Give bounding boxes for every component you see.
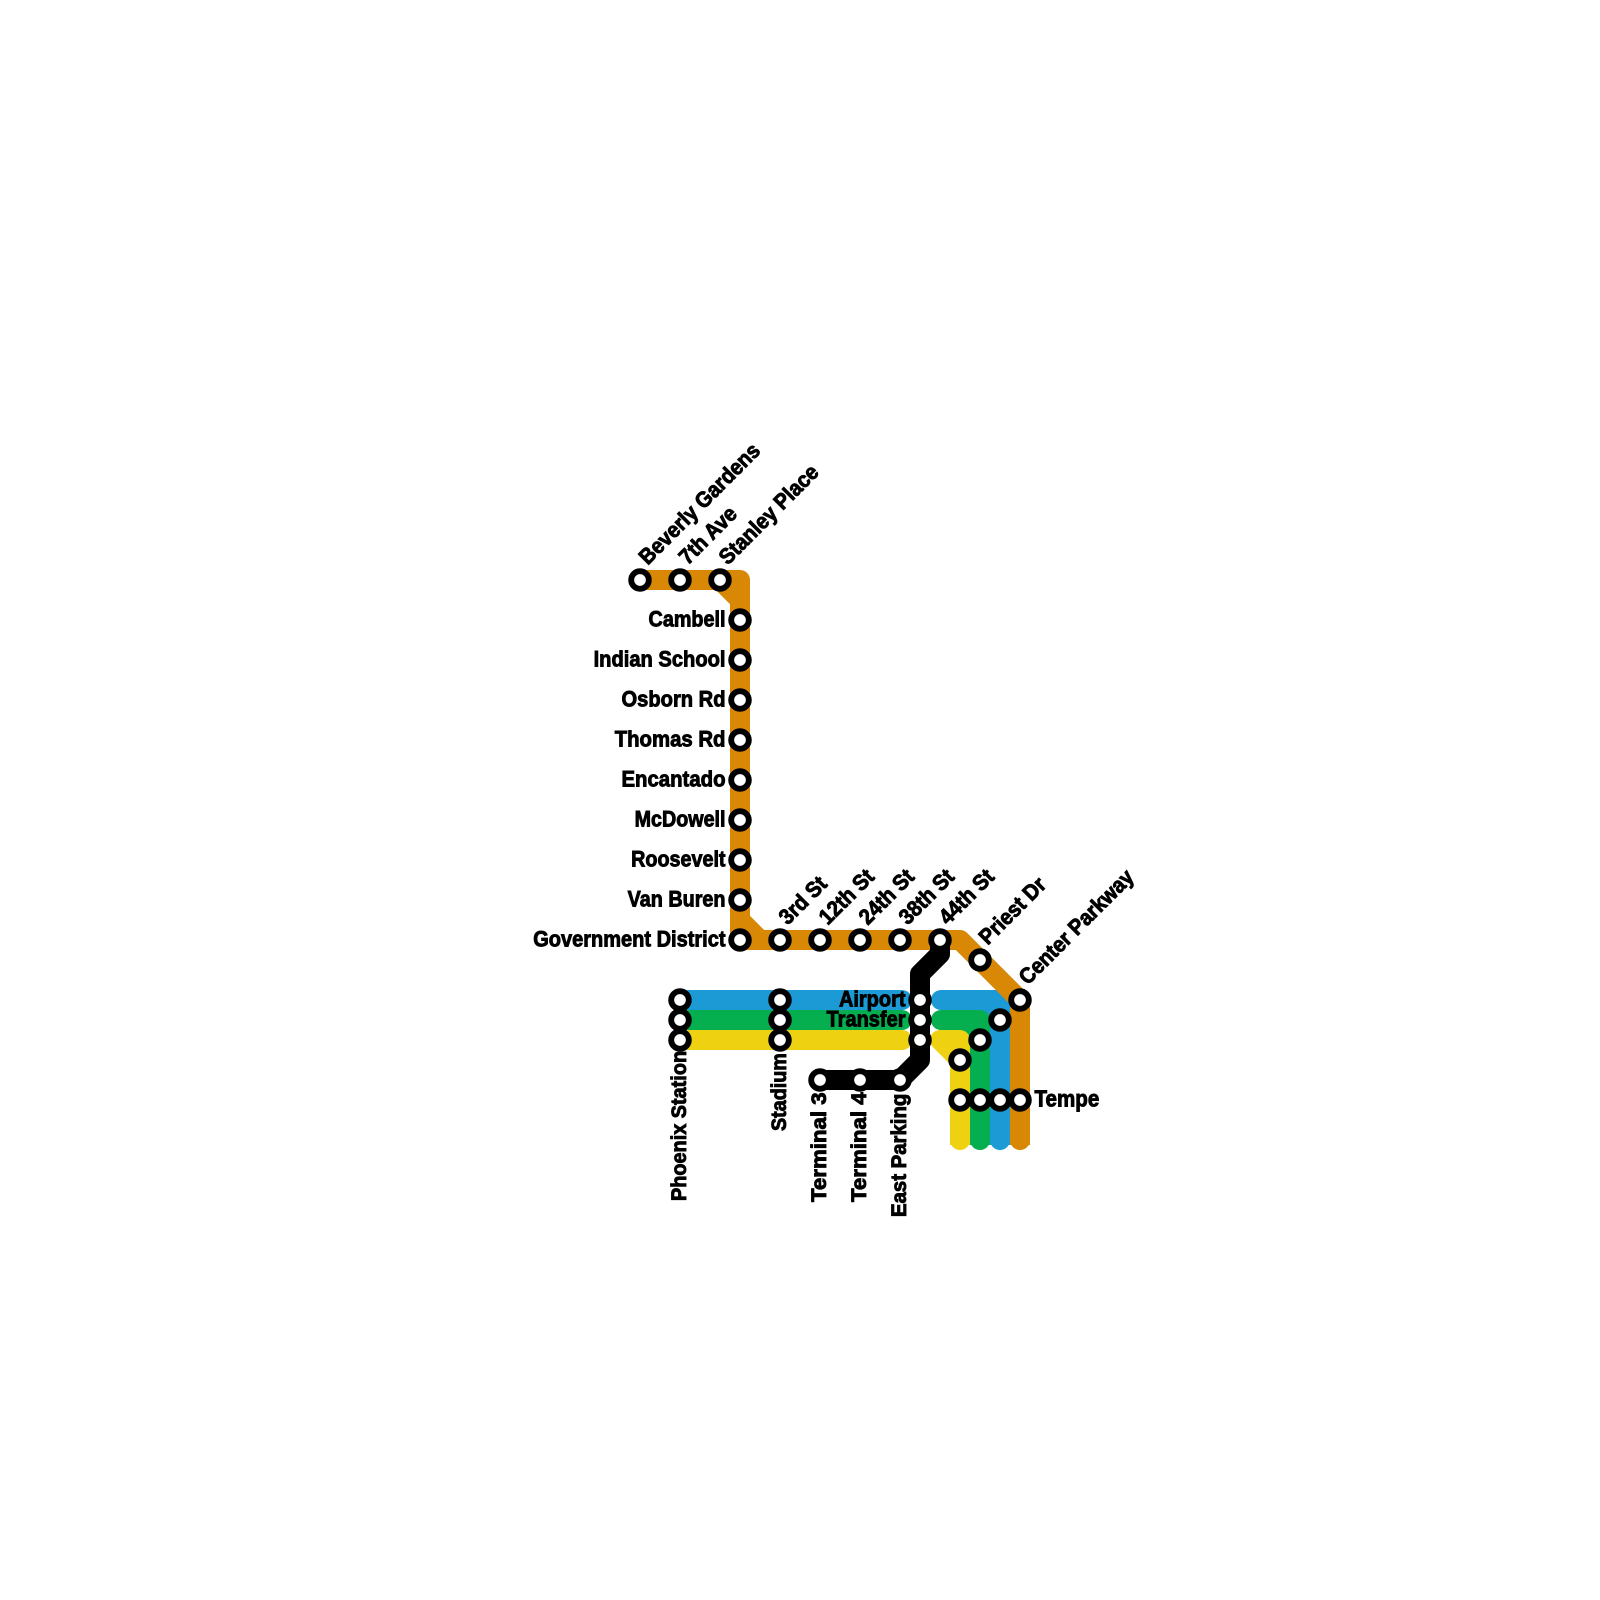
- svg-text:Van Buren: Van Buren: [628, 888, 726, 912]
- svg-text:Indian School: Indian School: [594, 648, 726, 672]
- svg-text:East Parking: East Parking: [888, 1094, 911, 1217]
- svg-text:Cambell: Cambell: [649, 608, 726, 632]
- svg-text:McDowell: McDowell: [635, 808, 726, 832]
- svg-text:Phoenix Station: Phoenix Station: [668, 1051, 692, 1201]
- svg-text:Terminal 4: Terminal 4: [847, 1092, 871, 1202]
- svg-text:Stadium: Stadium: [768, 1053, 791, 1131]
- svg-text:Government District: Government District: [533, 928, 725, 952]
- svg-text:Tempe: Tempe: [1035, 1085, 1100, 1111]
- svg-text:Transfer: Transfer: [827, 1008, 906, 1032]
- svg-text:Osborn Rd: Osborn Rd: [622, 688, 726, 712]
- svg-text:Roosevelt: Roosevelt: [631, 848, 725, 872]
- svg-text:Thomas Rd: Thomas Rd: [615, 728, 726, 752]
- svg-text:Terminal 3: Terminal 3: [807, 1092, 831, 1202]
- svg-text:Encantado: Encantado: [621, 768, 725, 792]
